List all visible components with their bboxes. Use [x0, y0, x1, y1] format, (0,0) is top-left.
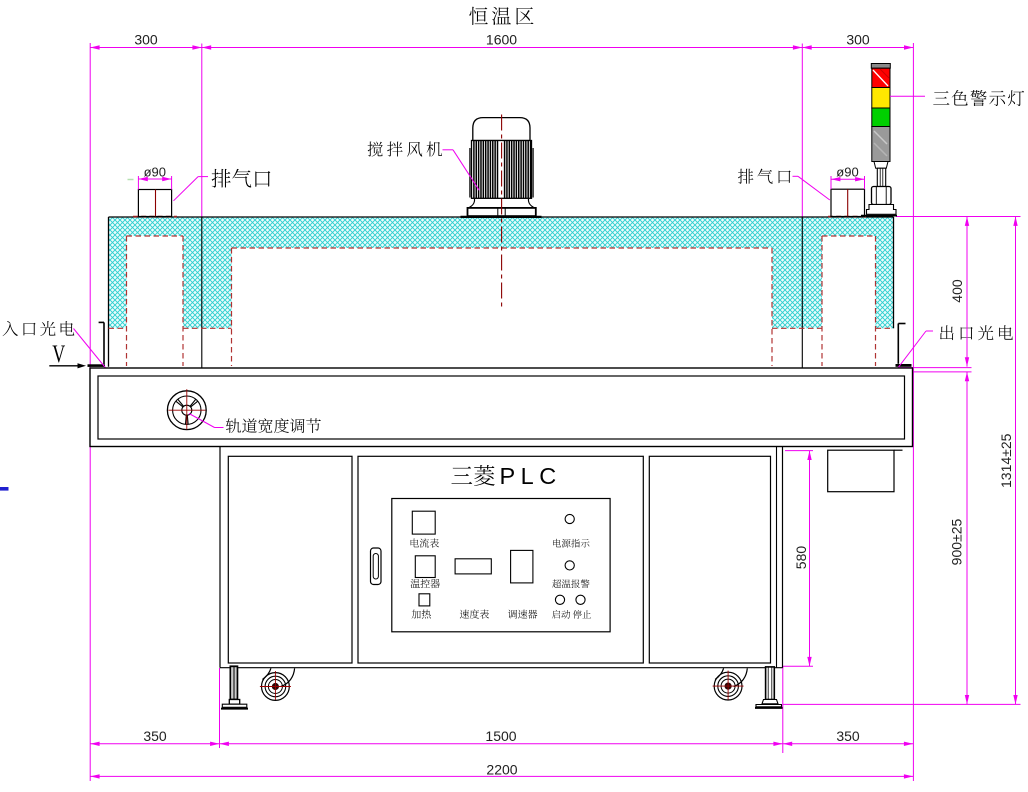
- svg-text:350: 350: [143, 728, 167, 744]
- svg-text:V: V: [52, 341, 65, 368]
- svg-text:ø90: ø90: [836, 165, 858, 180]
- svg-text:900±25: 900±25: [949, 518, 965, 565]
- svg-text:ø90: ø90: [144, 165, 166, 180]
- svg-text:300: 300: [846, 32, 870, 48]
- svg-text:350: 350: [836, 728, 860, 744]
- svg-text:PLC: PLC: [500, 463, 562, 489]
- svg-text:300: 300: [134, 32, 158, 48]
- svg-text:1314±25: 1314±25: [998, 433, 1014, 488]
- svg-text:2200: 2200: [486, 762, 517, 778]
- svg-text:1600: 1600: [486, 32, 517, 48]
- svg-text:1500: 1500: [485, 728, 516, 744]
- svg-text:400: 400: [949, 279, 965, 303]
- svg-text:580: 580: [793, 546, 809, 570]
